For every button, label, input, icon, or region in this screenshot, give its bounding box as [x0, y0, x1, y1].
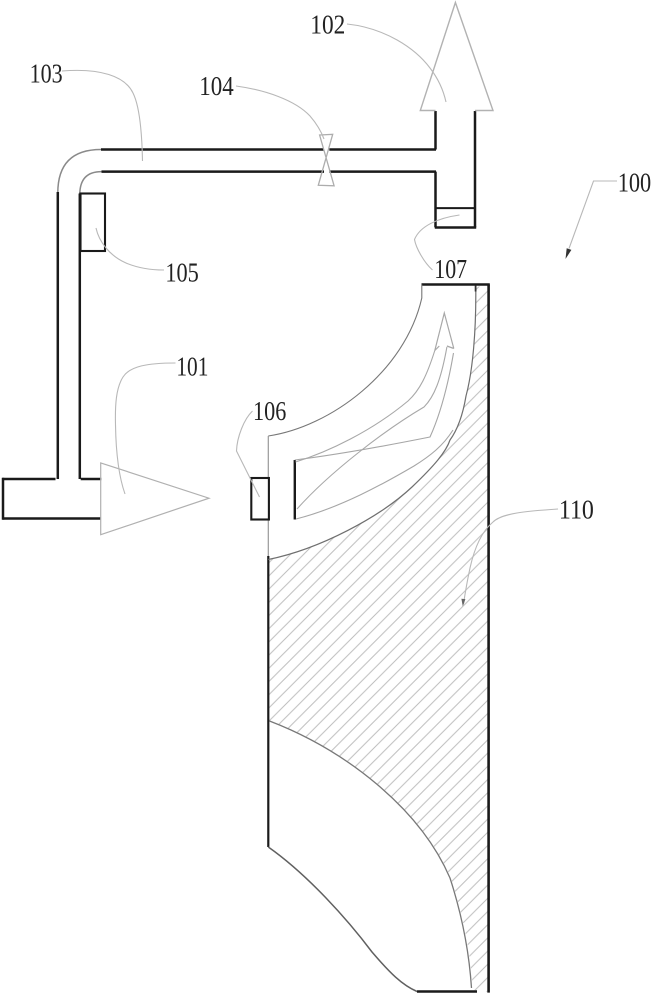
- svg-text:104: 104: [199, 71, 234, 101]
- svg-text:102: 102: [310, 10, 345, 40]
- svg-text:105: 105: [165, 257, 198, 287]
- svg-text:106: 106: [253, 396, 286, 426]
- svg-text:103: 103: [30, 59, 63, 89]
- svg-text:110: 110: [559, 494, 594, 524]
- svg-text:100: 100: [618, 167, 652, 197]
- svg-text:101: 101: [176, 352, 208, 382]
- svg-text:107: 107: [434, 254, 467, 284]
